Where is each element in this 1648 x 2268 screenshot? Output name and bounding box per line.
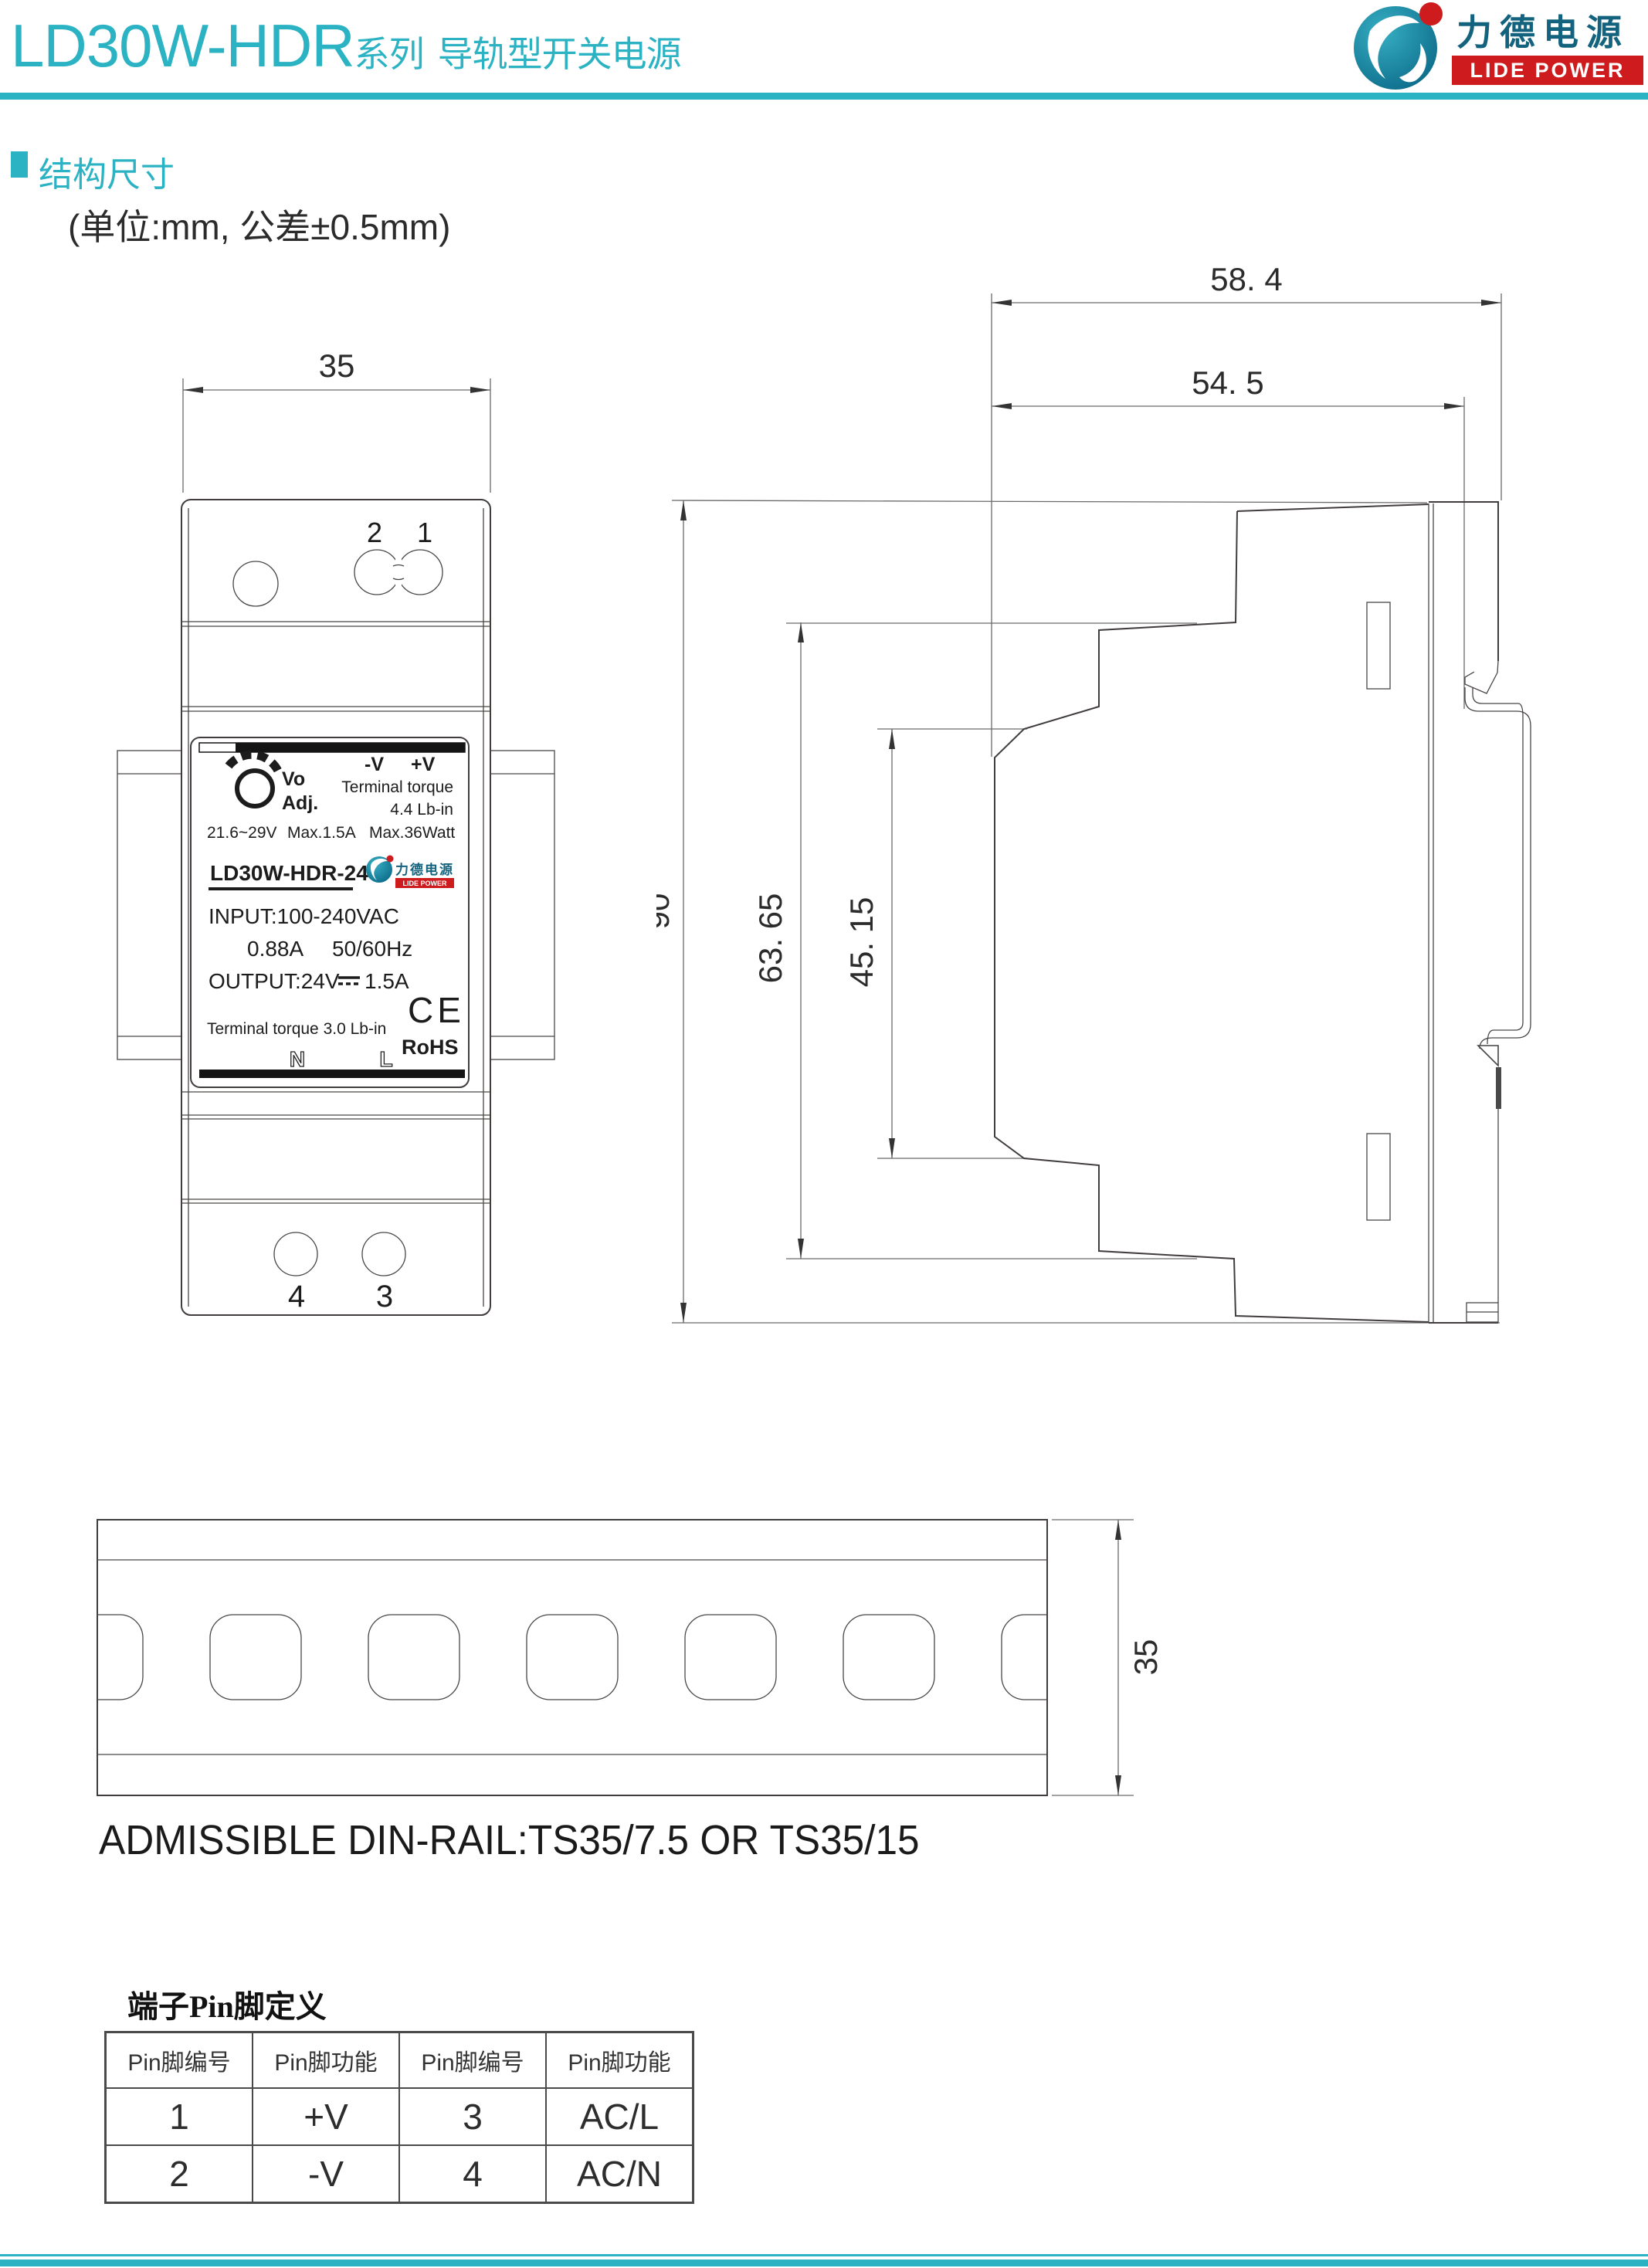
col-header-pin-function-1: Pin脚功能	[253, 2032, 399, 2089]
cell-pin-3: 3	[399, 2088, 546, 2145]
din-clip-bar	[1496, 1067, 1501, 1109]
minus-v-label: -V	[365, 754, 384, 775]
torque-value-top: 4.4 Lb-in	[390, 801, 453, 819]
side-view-drawing: 58. 4 54. 5 90 63. 65 45. 15	[656, 232, 1648, 1390]
side-body-outline	[995, 504, 1429, 1322]
front-view-drawing: 35	[77, 340, 664, 1375]
din-rail-stub-left	[117, 751, 181, 1059]
cell-pin-2: 2	[106, 2145, 253, 2203]
footer-bar	[0, 2260, 1648, 2266]
vo-text: Vo	[282, 768, 305, 790]
terminal-hole-3	[362, 1232, 405, 1276]
logo-swirl-icon	[1351, 2, 1444, 91]
company-logo: 力德电源 LIDE POWER	[1351, 2, 1648, 91]
page-title: LD30W-HDR系列导轨型开关电源	[11, 11, 681, 81]
model-number: LD30W-HDR-24	[210, 861, 368, 885]
adj-text: Adj.	[282, 792, 318, 814]
neutral-marking: N	[290, 1047, 305, 1071]
pin-definition-table: Pin脚编号 Pin脚功能 Pin脚编号 Pin脚功能 1 +V 3 AC/L …	[104, 2031, 694, 2204]
din-rail-caption: ADMISSIBLE DIN-RAIL:TS35/7.5 OR TS35/15	[99, 1816, 920, 1864]
pin-table-title: 端子Pin脚定义	[127, 1982, 327, 2026]
side-dim-54-5: 54. 5	[1192, 364, 1263, 401]
din-rail-stub-right	[490, 751, 554, 1059]
ce-mark: CE	[408, 990, 465, 1030]
input-spec: INPUT:100-240VAC	[209, 904, 399, 928]
header-divider-bar	[0, 93, 1648, 100]
product-type: 导轨型开关电源	[438, 34, 681, 74]
terminal-torque-top: Terminal torque	[341, 778, 453, 796]
back-plate	[1429, 502, 1498, 1323]
side-dim-90: 90	[656, 893, 676, 930]
din-rail-drawing: 35	[77, 1506, 1220, 1830]
terminal-hole-4	[274, 1232, 317, 1276]
label-logo-cn: 力德电源	[395, 862, 454, 877]
cell-func-1: +V	[253, 2088, 399, 2145]
side-dim-45-15: 45. 15	[843, 897, 880, 988]
input-current: 0.88A	[247, 937, 303, 961]
cell-pin-4: 4	[399, 2145, 546, 2203]
col-header-pin-function-2: Pin脚功能	[546, 2032, 693, 2089]
voltage-range: 21.6~29V	[207, 824, 277, 842]
section-bullet	[11, 151, 28, 178]
output-spec: OUTPUT:24V	[209, 969, 340, 993]
col-header-pin-number-1: Pin脚编号	[106, 2032, 253, 2089]
logo-red-banner: LIDE POWER	[1452, 56, 1643, 85]
pin-label-3: 3	[376, 1280, 393, 1314]
line-marking: L	[379, 1047, 392, 1071]
label-logo-en: LIDE POWER	[402, 880, 447, 887]
din-rail-slots	[77, 1615, 1093, 1700]
din-clip	[1465, 661, 1531, 1322]
cell-func-2: -V	[253, 2145, 399, 2203]
section-title: 结构尺寸	[39, 147, 175, 196]
rohs-mark: RoHS	[402, 1036, 459, 1059]
datasheet-page: LD30W-HDR系列导轨型开关电源 力德电源 LIDE POWER 结构尺寸 …	[0, 0, 1648, 2268]
pin-label-2: 2	[367, 517, 382, 548]
product-label: Vo Adj. -V +V Terminal torque 4.4 Lb-in …	[191, 737, 469, 1087]
logo-company-name-cn: 力德电源	[1456, 5, 1629, 56]
table-header-row: Pin脚编号 Pin脚功能 Pin脚编号 Pin脚功能	[106, 2032, 693, 2089]
front-dim-35: 35	[319, 347, 355, 384]
dc-symbol-icon	[338, 978, 360, 984]
series-suffix: 系列	[354, 34, 424, 74]
brand-name: LD30W-HDR	[11, 12, 354, 80]
pin-label-1: 1	[417, 517, 432, 548]
input-frequency: 50/60Hz	[332, 937, 412, 961]
col-header-pin-number-2: Pin脚编号	[399, 2032, 546, 2089]
label-logo: 力德电源 LIDE POWER	[366, 856, 454, 889]
terminal-torque-bottom: Terminal torque 3.0 Lb-in	[207, 1020, 386, 1038]
unit-note: (单位:mm, 公差±0.5mm)	[68, 199, 450, 250]
plus-v-label: +V	[411, 754, 436, 775]
rail-dim-35: 35	[1127, 1639, 1164, 1676]
side-dim-58-4: 58. 4	[1210, 261, 1282, 297]
cell-pin-1: 1	[106, 2088, 253, 2145]
pin-label-4: 4	[288, 1280, 305, 1314]
din-clip-latch-wedge	[1478, 1046, 1498, 1066]
max-power: Max.36Watt	[369, 824, 455, 842]
side-dim-63-65: 63. 65	[752, 893, 788, 984]
output-current: 1.5A	[365, 969, 409, 993]
table-row: 2 -V 4 AC/N	[106, 2145, 693, 2203]
max-current: Max.1.5A	[287, 824, 356, 842]
table-row: 1 +V 3 AC/L	[106, 2088, 693, 2145]
vo-adjust-pot-icon	[229, 754, 280, 806]
logo-company-name-en: LIDE POWER	[1470, 59, 1625, 83]
footer-thin-line	[0, 2254, 1648, 2256]
terminal-hole-top	[354, 550, 443, 595]
cell-func-3: AC/L	[546, 2088, 693, 2145]
mounting-hole	[233, 561, 278, 606]
cell-func-4: AC/N	[546, 2145, 693, 2203]
